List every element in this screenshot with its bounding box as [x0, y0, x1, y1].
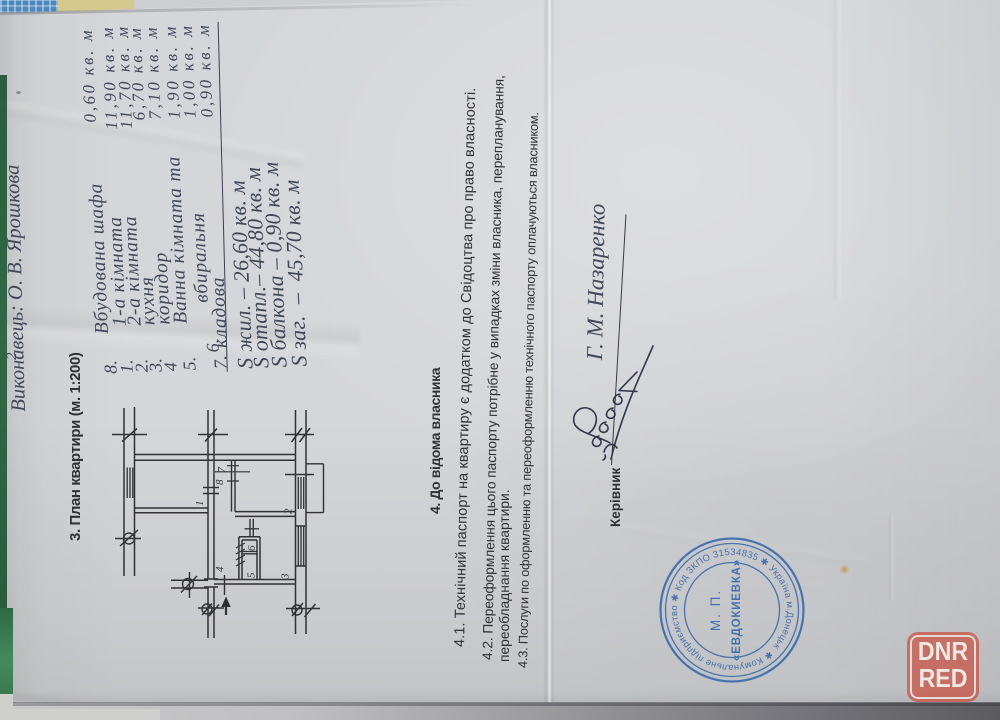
- svg-text:3: 3: [280, 573, 292, 580]
- svg-text:5: 5: [246, 572, 258, 578]
- svg-text:1: 1: [194, 501, 206, 507]
- svg-text:7: 7: [216, 467, 228, 473]
- svg-text:М. П.: М. П.: [708, 589, 723, 631]
- svg-text:4: 4: [214, 566, 226, 572]
- svg-text:6: 6: [246, 545, 258, 551]
- svg-text:«ЕВДОКИЕВКА»: «ЕВДОКИЕВКА»: [731, 559, 743, 661]
- svg-text:8: 8: [214, 479, 226, 485]
- svg-text:2: 2: [283, 508, 295, 514]
